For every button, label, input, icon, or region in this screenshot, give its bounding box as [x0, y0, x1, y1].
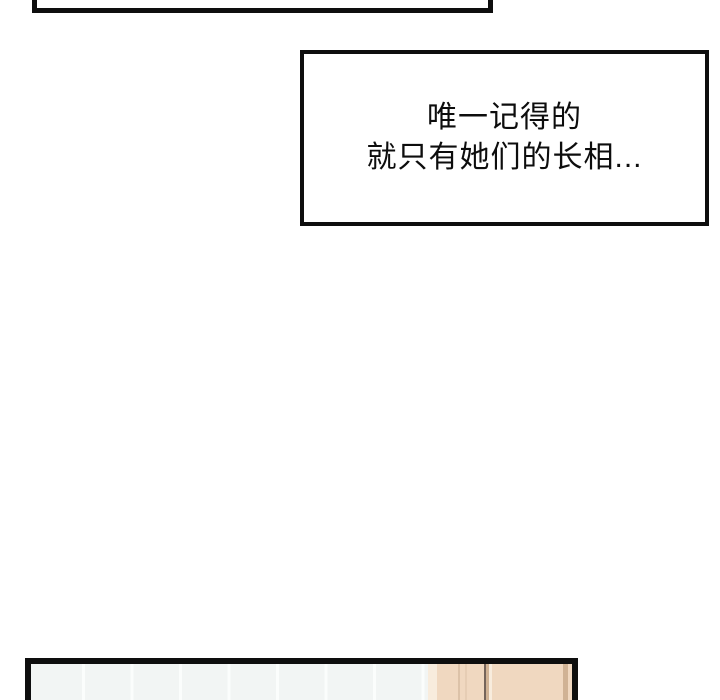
comic-page: 唯一记得的 就只有她们的长相...: [0, 0, 720, 700]
caption-box: 唯一记得的 就只有她们的长相...: [300, 50, 709, 226]
door-frame-line: [489, 664, 492, 700]
caption-text: 唯一记得的 就只有她们的长相...: [366, 98, 642, 178]
door-frame: [428, 664, 572, 700]
door-jamb-highlight: [428, 664, 437, 700]
caption-line-2: 就只有她们的长相...: [366, 138, 642, 178]
door-frame-line: [465, 664, 467, 700]
tile-wall: [31, 664, 428, 700]
door-frame-line: [563, 664, 568, 700]
caption-line-1: 唯一记得的: [366, 98, 642, 138]
panel-bottom-cropped: [25, 658, 578, 700]
panel-top-cropped-border: [32, 0, 493, 13]
door-frame-line: [458, 664, 460, 700]
